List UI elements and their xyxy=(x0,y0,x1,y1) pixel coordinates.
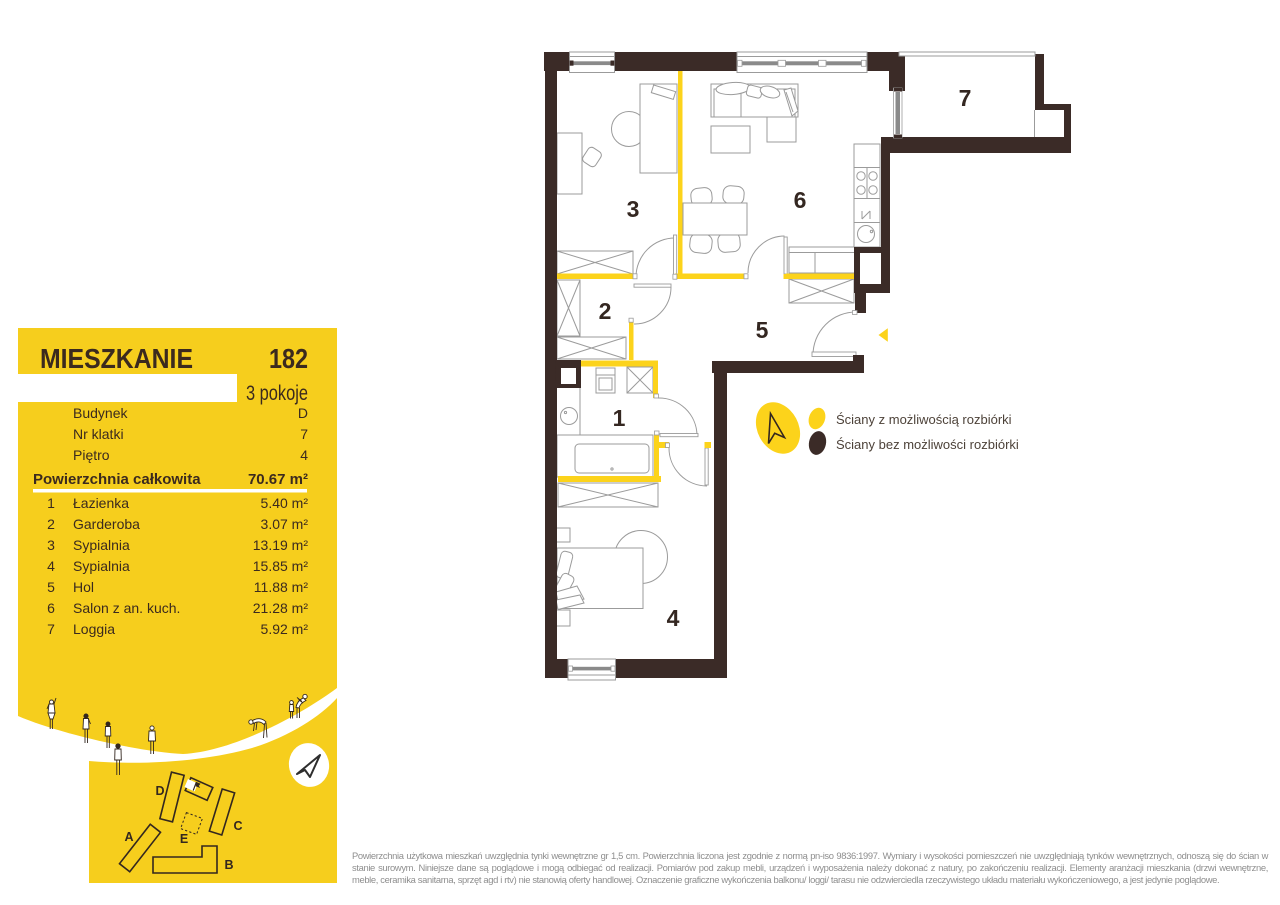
svg-text:182: 182 xyxy=(269,343,308,374)
svg-text:Salon z an. kuch.: Salon z an. kuch. xyxy=(73,600,180,616)
svg-text:Budynek: Budynek xyxy=(73,405,128,421)
svg-text:1: 1 xyxy=(47,495,55,511)
svg-text:Ściany z możliwością rozbiórki: Ściany z możliwością rozbiórki xyxy=(836,412,1012,427)
svg-text:Sypialnia: Sypialnia xyxy=(73,537,130,553)
svg-text:3: 3 xyxy=(47,537,55,553)
svg-text:15.85 m²: 15.85 m² xyxy=(253,558,309,574)
svg-text:6: 6 xyxy=(47,600,55,616)
svg-text:Ściany bez możliwości rozbiórk: Ściany bez możliwości rozbiórki xyxy=(836,437,1019,452)
svg-text:Nr klatki: Nr klatki xyxy=(73,426,124,442)
svg-text:Hol: Hol xyxy=(73,579,94,595)
svg-text:4: 4 xyxy=(667,605,680,631)
svg-text:B: B xyxy=(224,858,233,872)
svg-text:D: D xyxy=(298,405,308,421)
svg-text:3: 3 xyxy=(627,196,640,222)
svg-text:1: 1 xyxy=(613,405,626,431)
svg-text:5.40 m²: 5.40 m² xyxy=(261,495,309,511)
svg-text:2: 2 xyxy=(599,298,612,324)
svg-text:Łazienka: Łazienka xyxy=(73,495,129,511)
svg-text:7: 7 xyxy=(300,426,308,442)
svg-text:7: 7 xyxy=(47,621,55,637)
svg-text:3 pokoje: 3 pokoje xyxy=(246,382,308,405)
svg-text:Sypialnia: Sypialnia xyxy=(73,558,130,574)
svg-text:MIESZKANIE: MIESZKANIE xyxy=(40,343,193,374)
svg-text:Loggia: Loggia xyxy=(73,621,115,637)
svg-text:D: D xyxy=(155,784,164,798)
svg-text:5: 5 xyxy=(47,579,55,595)
svg-text:Powierzchnia całkowita: Powierzchnia całkowita xyxy=(33,471,201,488)
svg-text:4: 4 xyxy=(300,447,308,463)
svg-text:C: C xyxy=(233,819,242,833)
svg-text:5.92 m²: 5.92 m² xyxy=(261,621,309,637)
svg-text:7: 7 xyxy=(959,85,972,111)
svg-text:A: A xyxy=(124,830,133,844)
svg-text:6: 6 xyxy=(794,187,807,213)
svg-text:Piętro: Piętro xyxy=(73,447,110,463)
svg-text:Garderoba: Garderoba xyxy=(73,516,140,532)
svg-text:13.19 m²: 13.19 m² xyxy=(253,537,309,553)
svg-text:5: 5 xyxy=(756,317,769,343)
svg-text:21.28 m²: 21.28 m² xyxy=(253,600,309,616)
svg-text:4: 4 xyxy=(47,558,55,574)
svg-text:E: E xyxy=(180,832,188,846)
svg-text:2: 2 xyxy=(47,516,55,532)
svg-text:11.88 m²: 11.88 m² xyxy=(254,579,309,595)
svg-text:70.67 m²: 70.67 m² xyxy=(248,471,308,488)
svg-text:3.07 m²: 3.07 m² xyxy=(261,516,309,532)
